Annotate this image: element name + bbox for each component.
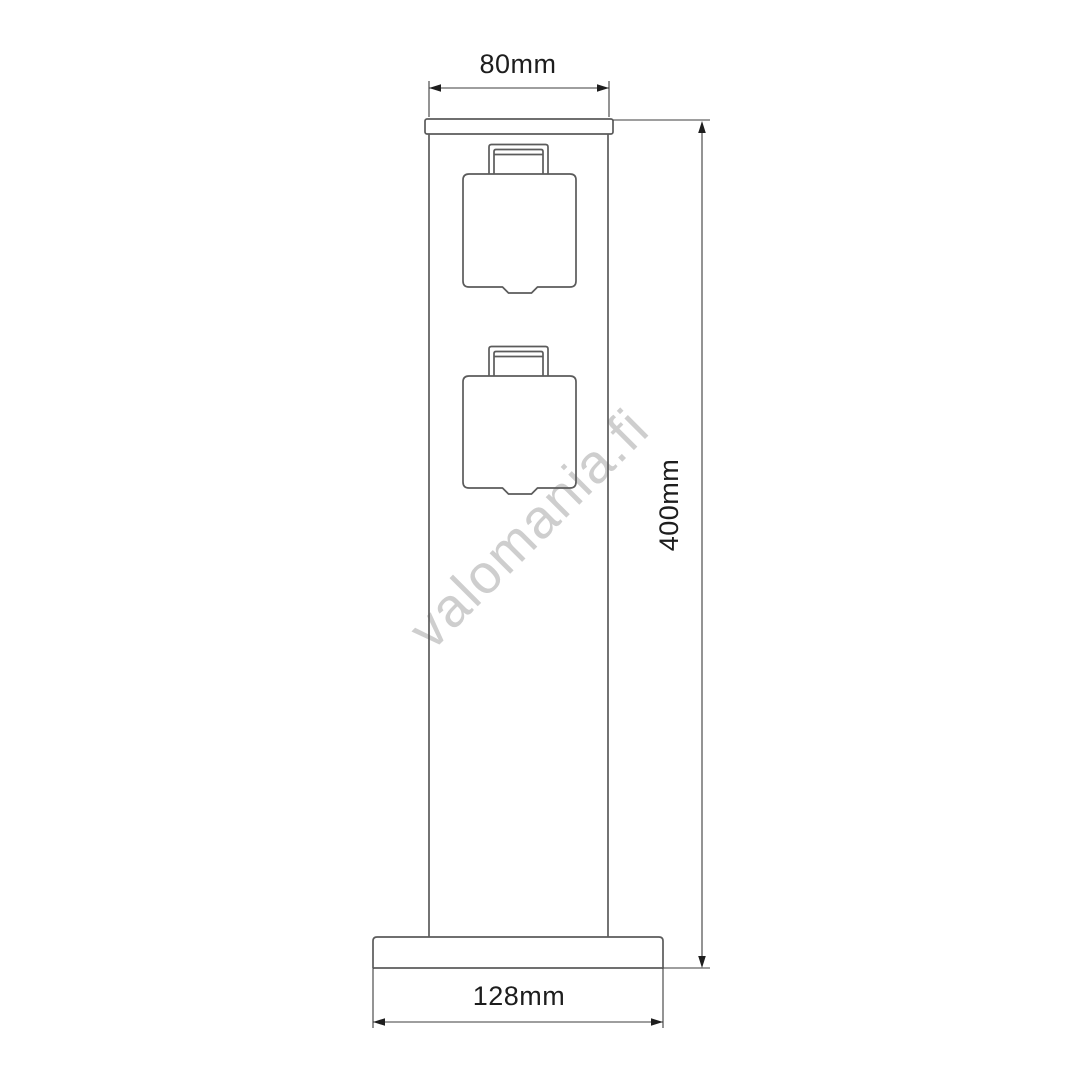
dim-label-height: 400mm (654, 459, 684, 552)
socket-pillar-dimension-diagram: valomania.fi (0, 0, 1080, 1080)
drawing-canvas: valomania.fi (0, 0, 1080, 1080)
dim-label-top-width: 80mm (479, 49, 556, 79)
dim-label-base-width: 128mm (473, 981, 566, 1011)
